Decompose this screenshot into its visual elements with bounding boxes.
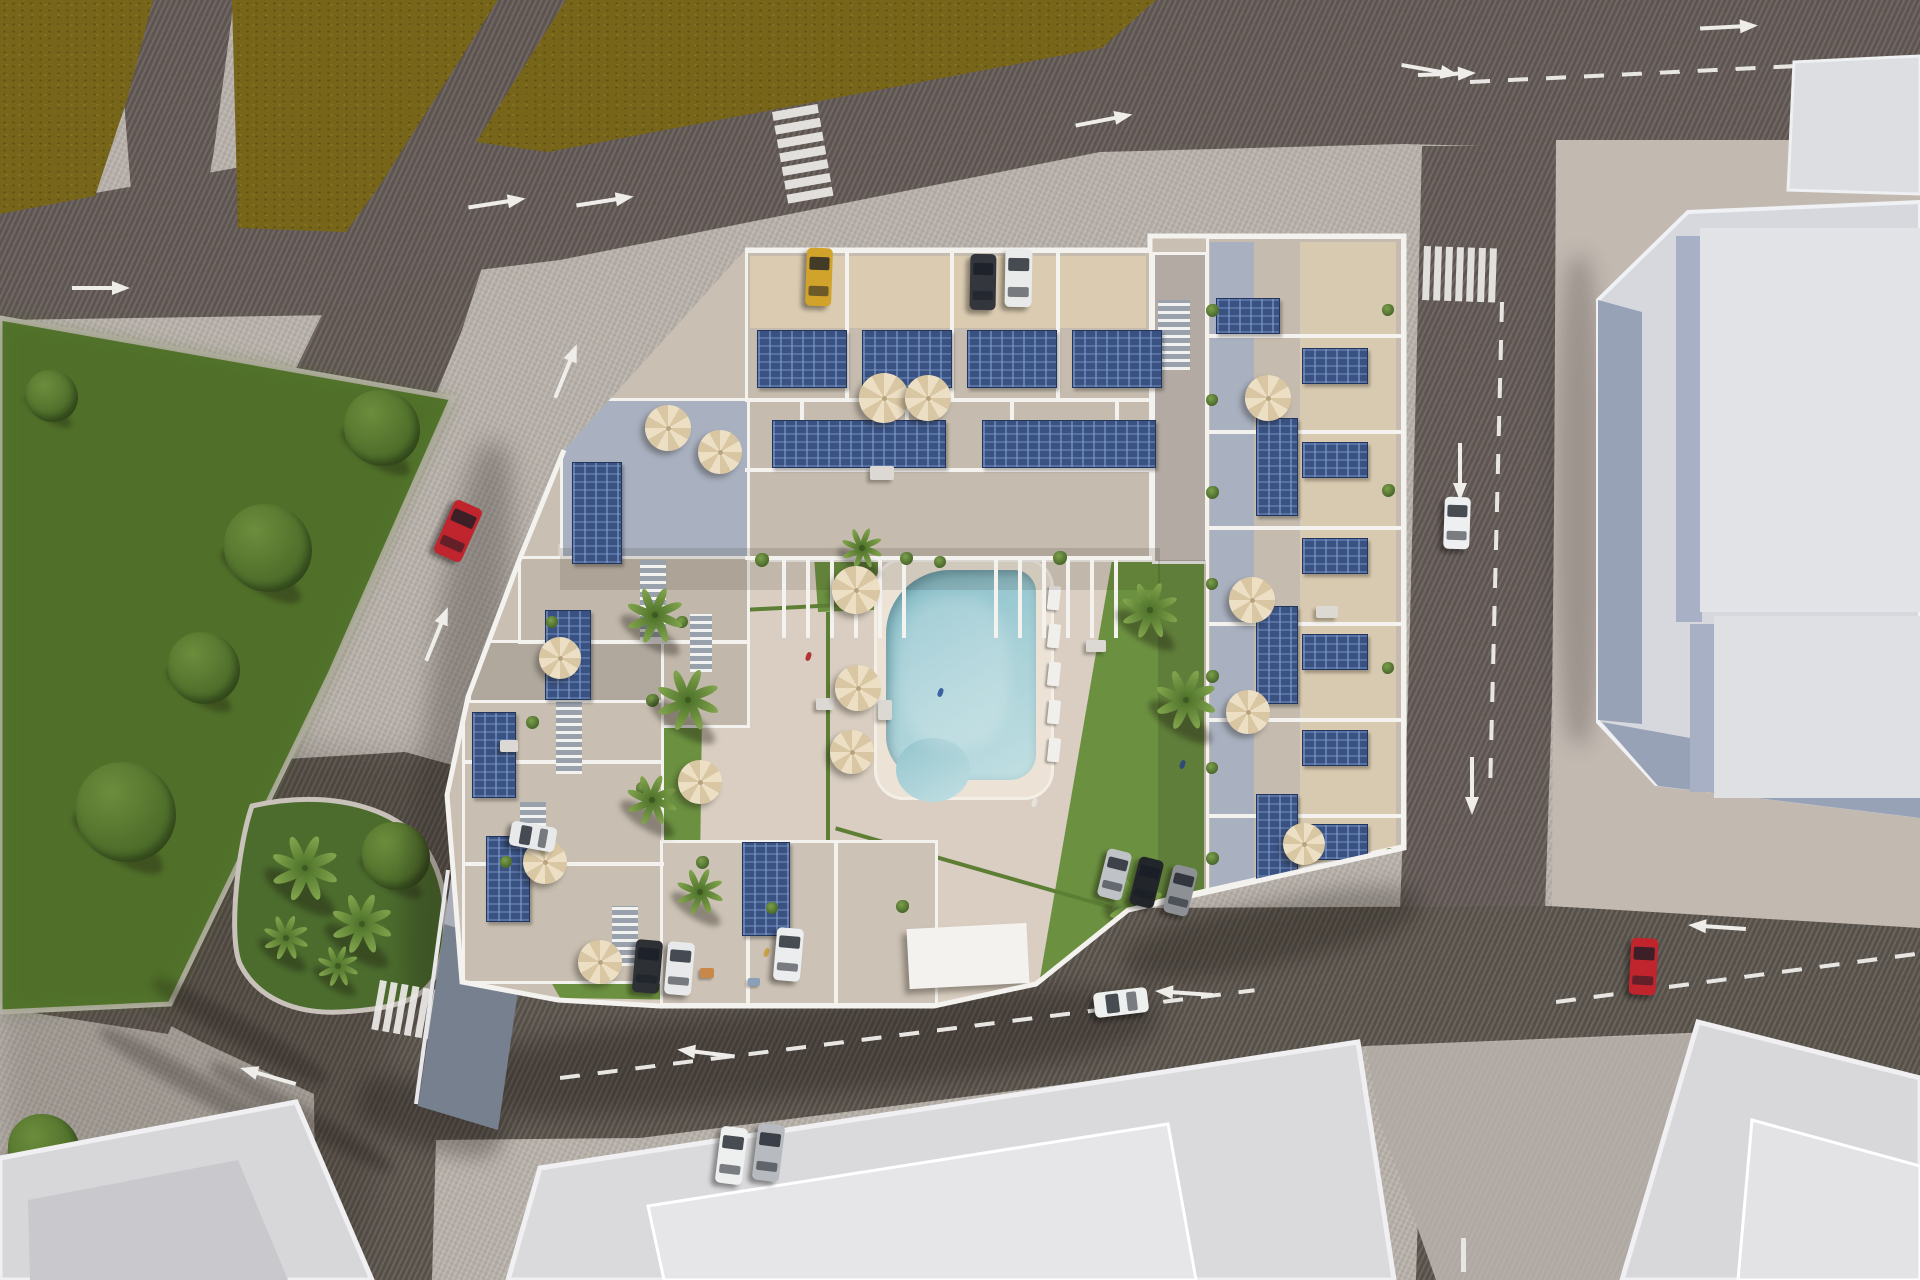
palm-frond xyxy=(673,698,692,731)
unit-wall xyxy=(1206,814,1404,818)
patio-table xyxy=(878,700,892,720)
palm-frond xyxy=(272,916,289,940)
complex-base xyxy=(0,0,1920,1280)
palm-frond xyxy=(638,588,659,617)
traffic-arrow-icon xyxy=(1154,982,1213,1004)
sun-lounger xyxy=(1047,585,1061,610)
palm-frond xyxy=(1121,597,1151,614)
patio-table xyxy=(1316,606,1338,618)
olive-field-wedge xyxy=(0,0,1920,1280)
planter xyxy=(636,782,648,794)
gray-annex-roof xyxy=(0,0,1920,1280)
unit-wall xyxy=(1114,560,1118,638)
white-car-bottom-lane xyxy=(1093,987,1150,1018)
solar-panel xyxy=(862,330,952,388)
palm-tree xyxy=(265,917,307,959)
cast-shadow xyxy=(350,1064,512,1169)
entrance-canopy xyxy=(501,611,561,732)
traffic-arrow-icon xyxy=(575,188,635,215)
tree-shadow xyxy=(65,801,171,885)
palm-frond xyxy=(1123,904,1140,933)
courtyard-lawn xyxy=(0,0,1920,1280)
unit-wall xyxy=(854,560,858,638)
bottom-right-building-penthouse xyxy=(0,0,1920,1280)
palm-crown xyxy=(697,889,703,895)
unit-wall xyxy=(1018,560,1022,638)
unit-wall xyxy=(1056,252,1060,400)
palm-crown xyxy=(859,545,865,551)
palm-frond xyxy=(361,919,393,938)
planter xyxy=(696,856,709,869)
palm-frond xyxy=(696,868,711,893)
palm-crown xyxy=(359,921,365,927)
palm-frond xyxy=(358,922,380,954)
palm-frond xyxy=(335,945,348,967)
palm-frond xyxy=(1146,581,1163,611)
planter xyxy=(676,616,688,628)
patio-table xyxy=(500,740,518,752)
white-car-parked-south-2 xyxy=(773,927,805,982)
white-car-bottom-pair xyxy=(715,1126,749,1186)
terrace-floor xyxy=(1300,242,1396,902)
palm-frond xyxy=(1155,686,1187,705)
unit-wall xyxy=(1042,560,1046,638)
swimming-pool xyxy=(886,570,1036,780)
gray-annex-parapet xyxy=(0,0,1920,1280)
cast-shadow xyxy=(94,1020,314,1161)
unit-wall xyxy=(1115,400,1119,470)
palm-frond xyxy=(686,695,719,714)
unit-wall xyxy=(745,556,1152,560)
round-tree xyxy=(362,822,430,890)
palm-frond xyxy=(669,669,692,702)
unit-wall xyxy=(902,560,906,638)
playground-item xyxy=(748,978,760,986)
palm-frond xyxy=(648,774,664,802)
patio-umbrella xyxy=(1283,823,1325,865)
palm-tree xyxy=(1124,584,1176,636)
white-car-right-road xyxy=(1443,497,1471,550)
tree-shadow xyxy=(160,660,236,720)
palm-tree xyxy=(629,589,681,641)
palm-frond xyxy=(271,852,307,873)
palm-crown xyxy=(335,963,341,969)
park-lawn-shade xyxy=(0,0,1920,1280)
cast-shadow xyxy=(427,968,1163,1136)
apartment-complex xyxy=(0,0,1920,1280)
tree-shadow xyxy=(666,886,724,932)
stairwell xyxy=(690,614,712,672)
palm-frond xyxy=(283,915,297,939)
solar-panel xyxy=(1256,794,1298,886)
solar-panel xyxy=(1302,634,1368,670)
unit-wall xyxy=(462,760,664,764)
tree-shadow xyxy=(615,794,679,844)
solar-panel xyxy=(742,842,790,936)
palm-frond xyxy=(285,935,309,949)
aerial-site-render xyxy=(0,0,1920,1280)
palm-frond xyxy=(337,963,359,976)
planter xyxy=(1384,848,1396,860)
palm-frond xyxy=(640,799,656,827)
unit-wall xyxy=(462,862,664,866)
road-left-vertical xyxy=(0,0,1920,1280)
sun-lounger xyxy=(960,536,985,550)
round-tree xyxy=(76,762,176,862)
tree-shadow xyxy=(258,860,340,925)
palm-frond xyxy=(628,611,657,632)
traffic-arrow-icon xyxy=(238,1059,299,1092)
palm-frond xyxy=(677,889,702,907)
olive-field-northwest xyxy=(0,0,1920,1280)
solar-panel xyxy=(1302,442,1368,478)
palm-frond xyxy=(337,954,359,969)
palm-tree xyxy=(1111,880,1161,930)
unit-wall xyxy=(806,560,810,638)
right-plinth-south-face xyxy=(0,0,1920,1280)
bottom-right-building xyxy=(0,0,1920,1280)
palm-frond xyxy=(689,891,704,916)
palm-frond xyxy=(861,545,883,558)
palm-frond xyxy=(335,965,350,987)
tree-shadow xyxy=(644,692,721,753)
terrace-shade xyxy=(1158,560,1206,980)
planter xyxy=(755,553,769,567)
person xyxy=(1179,759,1187,769)
patio-umbrella xyxy=(539,637,581,679)
traffic-island xyxy=(0,0,1920,1280)
tree-shadow xyxy=(319,917,393,976)
palm-frond xyxy=(656,685,689,704)
gray-car-parked-southeast xyxy=(1162,864,1198,918)
palm-frond xyxy=(284,924,308,941)
palm-frond xyxy=(283,936,300,960)
tree-shadow xyxy=(833,543,883,583)
traffic-arrow-icon xyxy=(467,190,527,217)
unit-wall xyxy=(1206,622,1404,626)
palm-tree xyxy=(843,529,881,567)
solar-panel xyxy=(1302,538,1368,574)
planter xyxy=(546,616,558,628)
bottom-center-building-penthouse xyxy=(0,0,1920,1280)
gray-annex-building xyxy=(0,0,1920,1280)
planter xyxy=(1206,486,1219,499)
pool-deck xyxy=(874,558,1054,800)
planter xyxy=(1382,304,1394,316)
tree-shadow xyxy=(309,961,359,1001)
palm-frond xyxy=(300,866,325,901)
palm-frond xyxy=(1149,606,1179,623)
unit-wall xyxy=(800,400,804,470)
patio-umbrella xyxy=(1229,577,1275,623)
white-car-parked-south xyxy=(664,941,696,996)
person xyxy=(805,651,813,661)
person xyxy=(1031,797,1039,807)
traffic-arrow-icon xyxy=(1400,56,1460,84)
stairwell xyxy=(640,560,666,640)
palm-frond xyxy=(651,613,672,642)
palm-frond xyxy=(1181,669,1200,701)
palm-tree xyxy=(319,947,357,985)
palm-tree xyxy=(678,870,722,914)
planter xyxy=(934,556,946,568)
palm-crown xyxy=(1133,902,1139,908)
palm-frond xyxy=(1146,608,1167,637)
hedge-line xyxy=(835,826,1113,909)
unit-wall xyxy=(745,468,1152,472)
patio-umbrella xyxy=(578,940,622,984)
courtyard-lawn xyxy=(0,0,1920,1280)
unit-wall xyxy=(905,400,909,470)
palm-frond xyxy=(1120,879,1140,907)
tree-shadow xyxy=(214,539,307,613)
right-corner-building xyxy=(0,0,1920,1280)
palm-frond xyxy=(289,866,310,902)
pavement-bottom-gap xyxy=(0,0,1920,1280)
palm-frond xyxy=(317,956,339,969)
person xyxy=(763,947,771,957)
person xyxy=(937,687,945,697)
red-car-bottom-road xyxy=(1629,937,1659,995)
terrace-floor xyxy=(462,700,664,984)
tree-shadow xyxy=(0,1142,76,1202)
palm-frond xyxy=(648,798,667,825)
silver-car-parked-southeast xyxy=(1096,848,1132,902)
right-tower-roof xyxy=(1700,228,1920,612)
bottom-center-building xyxy=(0,0,1920,1280)
cast-shadow xyxy=(147,970,333,1093)
palm-crown xyxy=(649,797,655,803)
unit-wall xyxy=(834,840,838,1006)
unit-wall xyxy=(745,398,1152,402)
palm-frond xyxy=(1182,698,1204,730)
sun-lounger xyxy=(1047,699,1061,724)
road-bottom xyxy=(0,0,1920,1280)
palm-frond xyxy=(841,538,863,551)
unit-wall xyxy=(994,560,998,638)
palm-frond xyxy=(697,890,715,915)
palm-frond xyxy=(300,834,321,870)
solar-panel xyxy=(1302,348,1368,384)
tree-shadow xyxy=(1110,603,1179,657)
palm-frond xyxy=(285,835,310,870)
terrace-floor xyxy=(1210,242,1254,902)
palm-frond xyxy=(332,920,364,942)
patio-umbrella xyxy=(1226,690,1270,734)
palm-frond xyxy=(859,547,874,569)
lane-dashes xyxy=(1470,58,1920,84)
sun-lounger xyxy=(1047,623,1061,648)
hedge-line xyxy=(700,602,860,614)
sun-lounger xyxy=(924,537,949,551)
palm-frond xyxy=(1156,696,1188,718)
patio-umbrella xyxy=(1245,375,1291,421)
courtyard-lawn xyxy=(0,0,1920,1280)
pool-reflection xyxy=(898,596,1010,748)
traffic-arrow-icon xyxy=(676,1041,736,1066)
palm-frond xyxy=(1110,901,1138,921)
stairwell xyxy=(612,906,638,966)
planter xyxy=(636,952,649,965)
solar-panel xyxy=(1302,730,1368,766)
solar-panel xyxy=(572,462,622,564)
park-lawn xyxy=(0,0,1920,1280)
unit-wall xyxy=(518,640,750,644)
tree-shadow xyxy=(254,932,310,976)
palm-frond xyxy=(360,906,392,928)
solar-panel xyxy=(967,330,1057,388)
tree-shadow xyxy=(1098,898,1164,950)
entrance-canopy-face xyxy=(549,619,579,730)
traffic-arrow-icon xyxy=(547,341,585,402)
planter xyxy=(526,716,539,729)
palm-frond xyxy=(344,894,366,926)
right-plinth xyxy=(0,0,1920,1280)
dark-car-parked-south xyxy=(632,939,664,994)
sun-lounger xyxy=(996,535,1021,549)
sun-lounger xyxy=(1047,661,1061,686)
palm-frond xyxy=(627,796,654,815)
patio-table xyxy=(816,698,834,710)
palm-frond xyxy=(852,547,865,569)
courtyard-plaza xyxy=(558,544,1210,1006)
palm-frond xyxy=(686,681,719,704)
stairwell xyxy=(556,700,582,774)
palm-frond xyxy=(348,923,367,955)
terrace-floor xyxy=(745,250,1152,562)
patio-umbrella xyxy=(835,665,881,711)
palm-frond xyxy=(699,888,724,903)
palm-frond xyxy=(272,863,307,888)
unit-wall xyxy=(782,560,786,638)
planter xyxy=(1206,304,1219,317)
lane-dashes xyxy=(1556,951,1920,1004)
courtyard-lawn xyxy=(0,0,1920,1280)
shade-bottom-left xyxy=(0,0,1920,1280)
traffic-arrow-icon xyxy=(1418,64,1477,84)
palm-frond xyxy=(264,935,288,952)
palm-frond xyxy=(657,696,690,719)
right-tower-west-face xyxy=(1676,236,1702,622)
lane-dashes xyxy=(1488,302,1504,780)
palm-frond xyxy=(861,536,883,551)
bottom-left-building-roof xyxy=(0,0,1920,1280)
traffic-arrow-icon xyxy=(1451,443,1469,501)
sun-lounger xyxy=(1047,737,1061,762)
white-car-parked-north xyxy=(1004,249,1032,307)
planter xyxy=(646,694,659,707)
palm-frond xyxy=(328,965,341,987)
right-plinth-west-face xyxy=(0,0,1920,1280)
olive-field-north xyxy=(0,0,1920,1280)
palm-frond xyxy=(331,910,363,929)
unit-wall xyxy=(1206,526,1404,530)
palm-tree xyxy=(1158,672,1214,728)
right-tower2-west-face xyxy=(1690,624,1716,792)
palm-frond xyxy=(650,784,677,803)
palm-frond xyxy=(683,668,702,701)
palm-frond xyxy=(275,937,289,961)
palm-frond xyxy=(651,586,668,616)
patio-umbrella xyxy=(905,375,951,421)
palm-crown xyxy=(1183,697,1189,703)
round-tree xyxy=(168,632,240,704)
terrace-floor xyxy=(1152,252,1208,564)
palm-frond xyxy=(263,927,287,941)
patio-umbrella xyxy=(645,405,691,451)
road-top-artery xyxy=(0,0,1920,1280)
tree-shadow xyxy=(615,608,684,662)
palm-crown xyxy=(652,612,658,618)
cast-shadow xyxy=(1556,256,1602,744)
road-left-horizontal xyxy=(0,0,1920,1280)
cast-shadow xyxy=(205,1055,398,1179)
palm-tree xyxy=(628,776,676,824)
white-car-parked-west xyxy=(508,820,558,853)
palm-frond xyxy=(1134,889,1162,909)
palm-frond xyxy=(653,598,682,619)
tree-shadow xyxy=(1143,693,1217,752)
terrace-floor xyxy=(518,556,750,728)
palm-frond xyxy=(850,528,865,550)
round-tree xyxy=(8,1114,80,1186)
round-tree xyxy=(344,390,420,466)
unit-wall xyxy=(1010,400,1014,470)
palm-frond xyxy=(1109,892,1138,909)
pavement-right-terrace xyxy=(0,0,1920,1280)
palm-frond xyxy=(626,602,656,619)
terrace-floor xyxy=(560,398,750,564)
palm-frond xyxy=(1172,699,1191,731)
palm-frond xyxy=(636,775,655,802)
palm-frond xyxy=(303,848,338,873)
solar-panel xyxy=(545,610,591,700)
bottom-left-building xyxy=(0,0,1920,1280)
round-tree xyxy=(0,1190,48,1270)
unit-wall xyxy=(1206,718,1404,722)
tree-shadow xyxy=(20,390,75,433)
planter xyxy=(1206,852,1219,865)
palm-frond xyxy=(303,863,339,884)
playground-item xyxy=(700,968,714,978)
lane-tick xyxy=(1461,1238,1466,1272)
palm-frond xyxy=(1185,695,1217,714)
unit-wall xyxy=(1066,560,1070,638)
palm-frond xyxy=(326,946,341,968)
palm-frond xyxy=(1123,606,1152,627)
solar-panel xyxy=(1256,418,1298,516)
palm-crown xyxy=(685,697,691,703)
right-tower2-roof xyxy=(1714,616,1920,798)
stairwell xyxy=(1158,300,1190,370)
unit-wall xyxy=(746,840,750,1006)
palm-frond xyxy=(684,698,707,731)
terrace-floor xyxy=(1206,236,1404,910)
terrace-shade xyxy=(560,548,1160,590)
tree-shadow xyxy=(0,1222,44,1280)
patio-table xyxy=(1086,640,1106,652)
unit-wall xyxy=(845,252,849,400)
solar-panel xyxy=(772,420,946,468)
cast-shadow xyxy=(460,719,575,775)
planter xyxy=(1206,670,1219,683)
sun-lounger xyxy=(852,541,877,555)
unit-wall xyxy=(1206,334,1404,338)
dark-car-parked-north xyxy=(970,254,997,310)
planter xyxy=(500,856,512,868)
palm-frond xyxy=(651,796,679,812)
traffic-arrow-icon xyxy=(1700,16,1759,37)
